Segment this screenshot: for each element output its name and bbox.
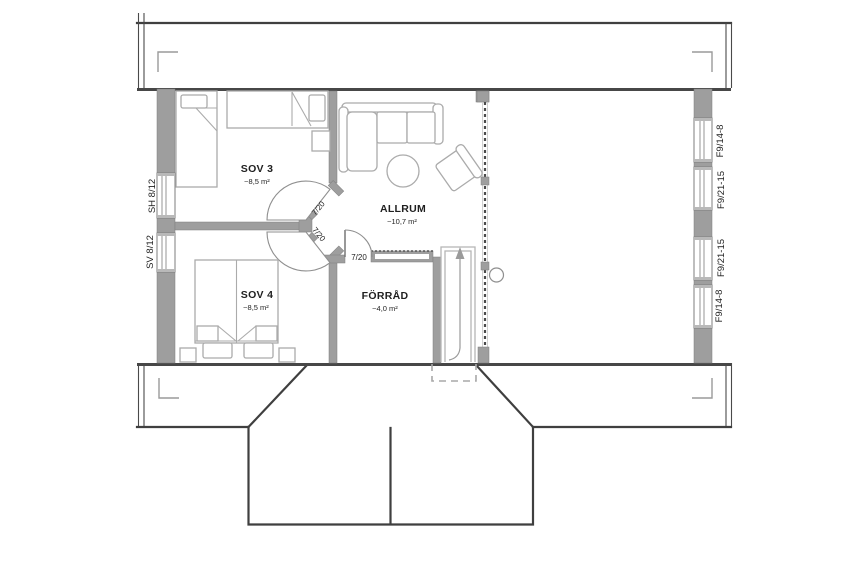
railing-bottom-block [478, 347, 489, 363]
sofa-cushion [407, 112, 435, 143]
duvet-corner-right [256, 326, 277, 341]
furniture-allrum [339, 103, 484, 194]
forrad-wall-strip-inner [375, 254, 429, 259]
window-label-right-4: F9/14-8 [714, 290, 725, 323]
stair-outline-inner [445, 251, 471, 362]
wall-right-3 [694, 210, 712, 237]
window-label-sh812: SH 8/12 [147, 179, 158, 213]
wall-top [137, 88, 731, 91]
railing-post-2 [481, 262, 489, 270]
round-table [387, 155, 419, 187]
roof-top-left-double-line [139, 13, 145, 88]
roof-bottom-right-double-line [726, 363, 732, 427]
door-label-forrad: 7/20 [351, 253, 367, 262]
roof-top-right-double-line [726, 23, 732, 88]
stair-up-arrow-line [449, 257, 460, 360]
roof-bottom-left-double-line [139, 363, 145, 427]
room-area-allrum: ~10,7 m² [387, 217, 417, 226]
stair-outline-outer [441, 247, 475, 362]
wall-sov3-sov4 [175, 222, 300, 230]
window-label-right-3: F9/21-15 [716, 239, 727, 277]
stair-wall [433, 257, 441, 363]
room-label-allrum: ALLRUM [380, 203, 426, 215]
stair-void-dashed [432, 364, 476, 381]
corner-mark-bottom-left [159, 378, 179, 398]
room-label-sov4: SOV 4 [241, 289, 273, 301]
wall-left-middle [157, 218, 175, 233]
window-right-3 [694, 237, 712, 280]
nightstand [279, 348, 295, 362]
room-label-forrad: FÖRRÅD [362, 289, 409, 302]
room-area-sov3: ~8,5 m² [244, 177, 270, 186]
room-area-sov4: ~8,5 m² [243, 303, 269, 312]
dormer-hip-left [249, 365, 308, 427]
wall-left-upper [157, 89, 175, 173]
corner-mark-top-left [158, 52, 178, 72]
pillow [244, 343, 273, 358]
floor-plan-canvas: SOV 3 ~8,5 m² SOV 4 ~8,5 m² ALLRUM ~10,7… [0, 0, 864, 576]
railing-top-post [477, 91, 489, 102]
corridor-wall-lower [329, 258, 337, 363]
window-right-1 [694, 118, 712, 162]
room-area-forrad: ~4,0 m² [372, 304, 398, 313]
flue-circle [490, 268, 504, 282]
wall-right-1 [694, 89, 712, 118]
room-label-sov3: SOV 3 [241, 163, 273, 175]
floor-plan-drawing: SOV 3 ~8,5 m² SOV 4 ~8,5 m² ALLRUM ~10,7… [0, 0, 864, 576]
corner-mark-top-right [692, 52, 712, 72]
wall-left-lower [157, 272, 175, 363]
window-label-sv812: SV 8/12 [145, 235, 156, 269]
pillow [309, 95, 325, 121]
pillow [203, 343, 232, 358]
sofa-cushion [377, 112, 407, 143]
window-sh-812 [157, 173, 175, 218]
wall-right-2 [694, 162, 712, 167]
nightstand [180, 348, 196, 362]
duvet-corner-left [197, 326, 218, 341]
armchair [433, 143, 483, 194]
sofa-chaise-cushion [347, 112, 377, 171]
wall-bottom [137, 363, 731, 366]
wall-right-5 [694, 328, 712, 363]
dormer-hip-right [476, 365, 533, 427]
corner-mark-bottom-right [692, 378, 712, 398]
railing-post-1 [481, 177, 489, 185]
sofa-back [342, 103, 437, 112]
window-right-4 [694, 285, 712, 328]
stair-up-arrow-head [456, 247, 465, 259]
window-label-right-2: F9/21-15 [716, 171, 727, 209]
nightstand [312, 131, 330, 151]
window-sv-812 [157, 233, 175, 272]
furniture-sov4 [180, 260, 295, 362]
pillow [181, 95, 207, 108]
window-label-right-1: F9/14-8 [715, 125, 726, 158]
wall-right-4 [694, 280, 712, 285]
window-right-2 [694, 167, 712, 210]
railing [477, 91, 489, 363]
